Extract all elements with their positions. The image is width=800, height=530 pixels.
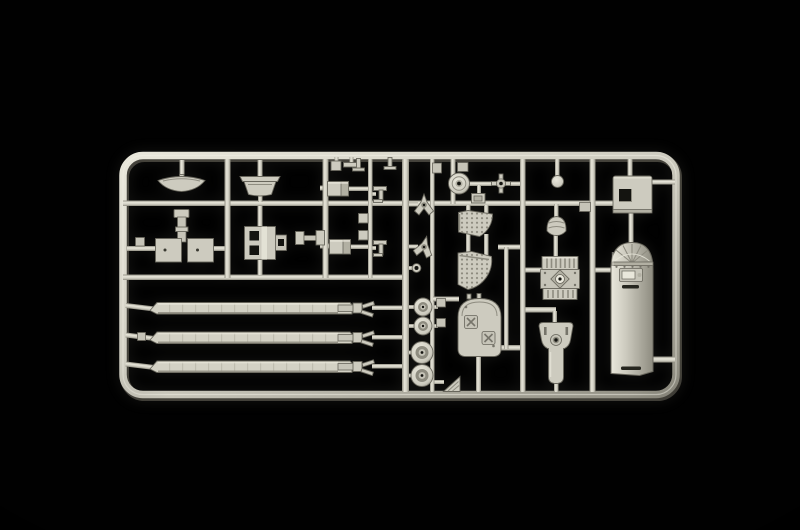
xpanel-bottom-stem	[476, 356, 481, 392]
small-ring-part	[412, 264, 421, 273]
dome-engine-stem	[554, 233, 559, 258]
tab-v4	[458, 163, 469, 172]
perforated-quarter-panel-part	[459, 211, 493, 237]
runner-h-lower	[123, 275, 407, 281]
pulley-wheel-small-b-part	[414, 317, 432, 335]
block2-right-stem	[349, 245, 369, 250]
runner-v2	[323, 159, 329, 278]
junction-box-part	[472, 194, 486, 204]
gearbox-stub	[524, 307, 556, 313]
rotor-blade-1-part	[150, 301, 374, 317]
pod-fairing-part	[547, 217, 566, 236]
bracket-top-stem	[258, 206, 263, 227]
seat-left-stem	[127, 246, 156, 251]
tab-left-rail-a	[136, 238, 145, 247]
seat-column-base-part	[156, 210, 214, 263]
window-right-stub	[651, 180, 675, 185]
mount-square-b-part	[359, 231, 369, 241]
panel-link-stem-b	[484, 234, 489, 256]
tab-v3b-top	[433, 163, 442, 173]
dome-top-stem	[554, 204, 559, 218]
tub-top-stem	[258, 160, 263, 177]
rotor-hub-disc-part	[449, 173, 470, 194]
door-panel-part	[611, 243, 653, 376]
window-panel-part	[613, 176, 652, 213]
window-stem	[628, 159, 633, 177]
cross-pulley-part	[492, 174, 511, 193]
ball-joint-part	[552, 176, 564, 188]
wheel-large-a-part	[411, 342, 433, 364]
link-rod-part	[296, 231, 325, 246]
photo-canvas	[0, 0, 800, 530]
bracket-plate-part	[245, 227, 287, 260]
tab-left-rail-b	[138, 333, 146, 341]
perforated-curved-panel-part	[458, 252, 492, 290]
tab-wheel-b	[437, 319, 446, 328]
engine-block-part	[541, 257, 580, 300]
runner-v5	[520, 159, 526, 392]
tub-pan-part	[240, 177, 280, 197]
gearbox-housing-part	[539, 323, 573, 384]
equipment-box-a-part	[328, 182, 349, 197]
blade1-root-runner	[372, 306, 406, 311]
rotor-blade-3-part	[150, 360, 374, 376]
pulley-wheel-small-a-part	[414, 298, 432, 316]
tab-v6	[580, 203, 591, 212]
blade2-root-runner	[372, 335, 406, 340]
wheel-large-b-part	[411, 365, 433, 387]
equipment-box-b-part	[330, 240, 351, 255]
blade3-root-runner	[372, 364, 406, 369]
wedge-plate-part	[444, 377, 461, 392]
door-left-stub	[595, 268, 613, 273]
runner-v3-main	[402, 159, 409, 392]
bulkhead-x-panel-part	[458, 294, 501, 357]
visor-dish-part	[158, 175, 205, 192]
sprue-runners	[123, 159, 675, 392]
ball-stem	[555, 159, 560, 177]
mount-square-a-part	[359, 214, 369, 224]
runner-v1	[225, 159, 231, 278]
rotor-blade-2-part	[150, 331, 374, 347]
tab-wheel-a	[437, 299, 446, 308]
runner-vc	[368, 159, 373, 278]
sprue-photo	[0, 0, 800, 530]
runner-v6	[590, 159, 596, 392]
runner-vx	[504, 247, 509, 349]
bracket-bottom-stem	[258, 259, 263, 275]
block1-right-stem	[347, 187, 369, 192]
door-bottom-stub	[651, 357, 675, 363]
